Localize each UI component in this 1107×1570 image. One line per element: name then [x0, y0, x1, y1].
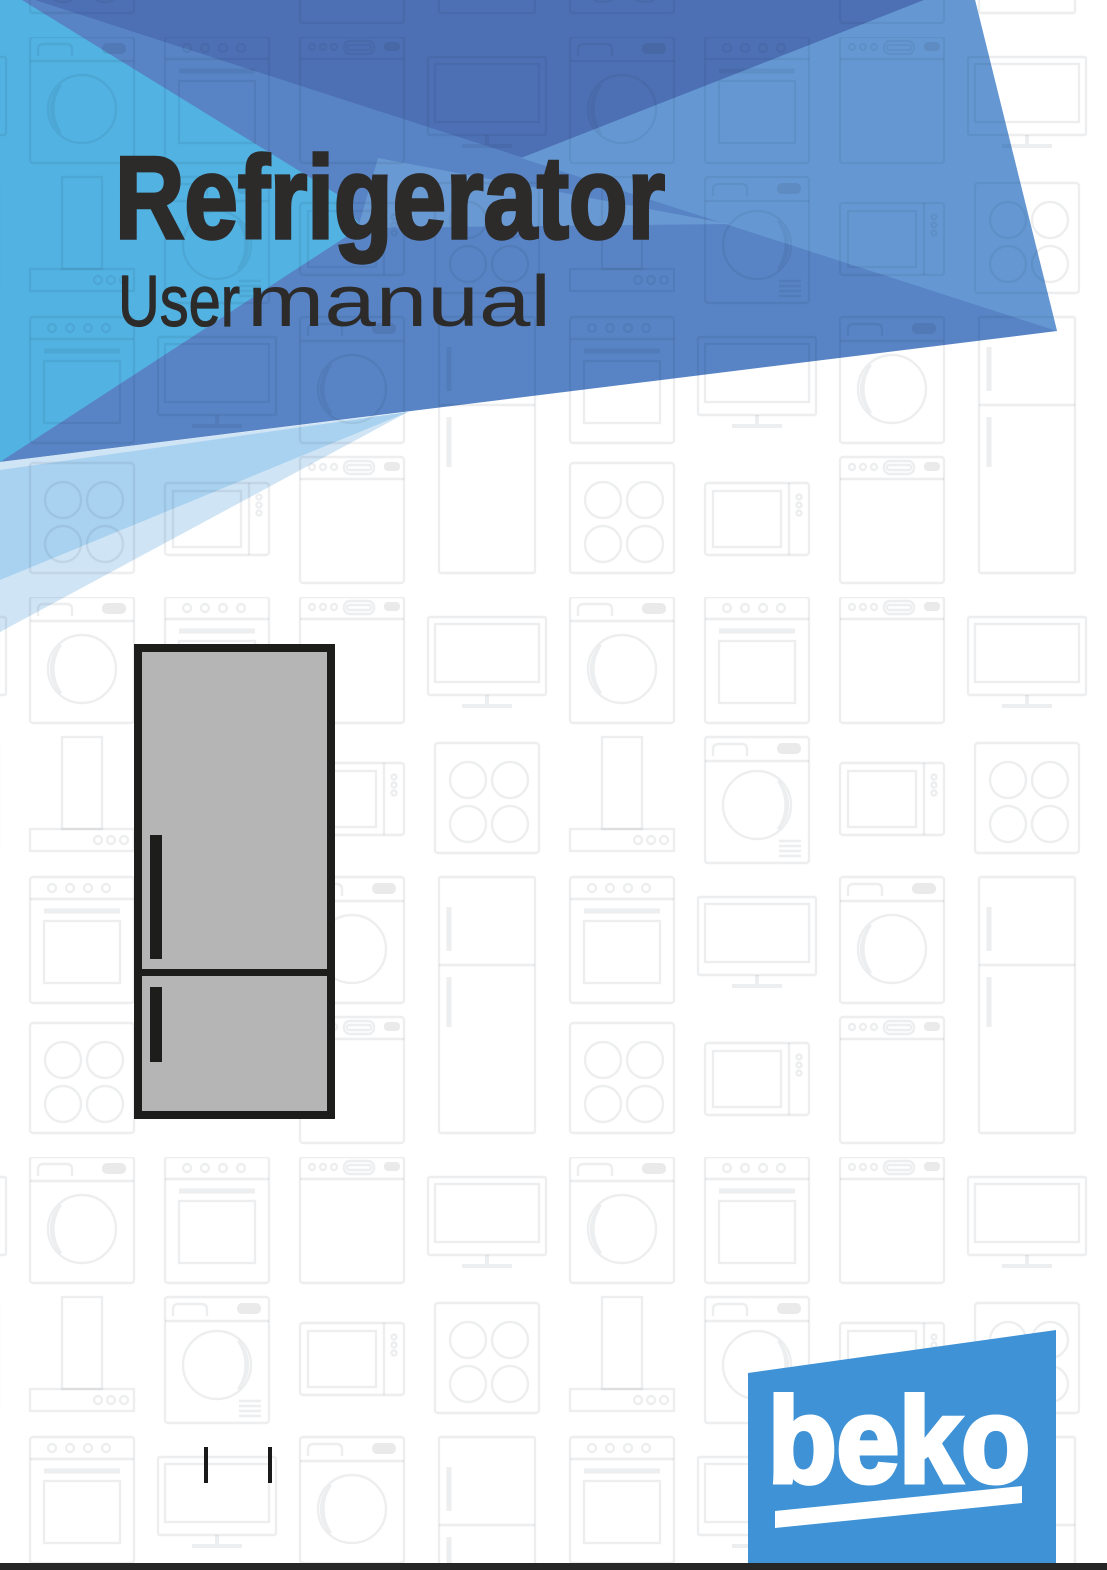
svg-text:User: User — [118, 262, 240, 342]
svg-text:beko: beko — [768, 1372, 1030, 1508]
svg-text:manual: manual — [247, 262, 551, 342]
svg-text:Refrigerator: Refrigerator — [115, 132, 665, 263]
